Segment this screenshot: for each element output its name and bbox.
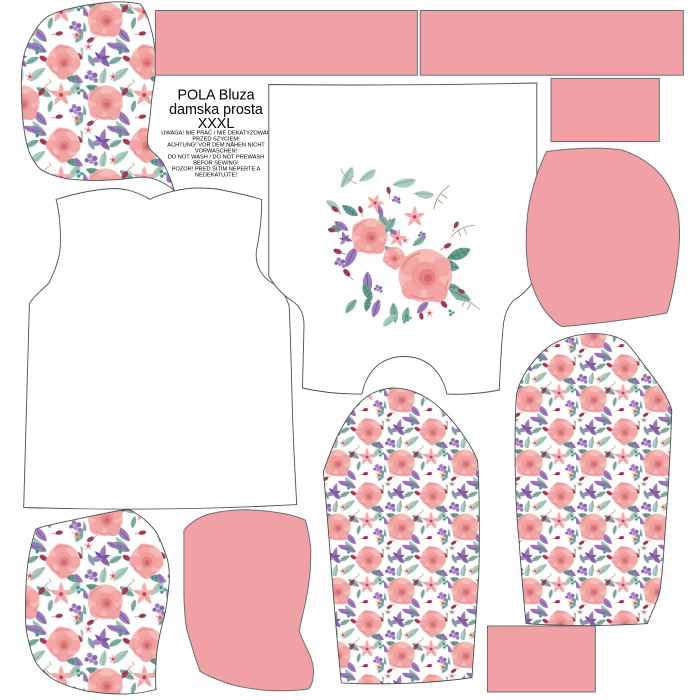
svg-text:UWAGA! NIE PRAĆ / NIE DEKATYZO: UWAGA! NIE PRAĆ / NIE DEKATYZOWAĆ	[161, 130, 270, 137]
svg-text:NEDEKATUJTE!: NEDEKATUJTE!	[195, 173, 237, 179]
svg-text:POZOR! PRED ŠITÍM NEPERTE A: POZOR! PRED ŠITÍM NEPERTE A	[172, 166, 261, 173]
svg-text:ACHTUNG! VOR DEM NÄHEN NICHT: ACHTUNG! VOR DEM NÄHEN NICHT	[167, 142, 265, 149]
